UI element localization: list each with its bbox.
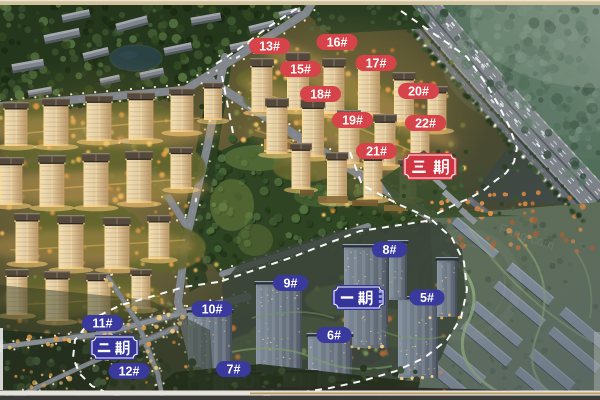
svg-text:5#: 5# [420,291,434,305]
svg-text:7#: 7# [227,362,241,376]
svg-text:6#: 6# [327,328,341,342]
svg-text:16#: 16# [327,35,348,49]
svg-text:19#: 19# [342,113,363,127]
svg-text:21#: 21# [366,144,387,158]
svg-text:11#: 11# [92,316,112,330]
svg-text:18#: 18# [310,87,331,101]
svg-text:8#: 8# [383,243,397,257]
svg-text:9#: 9# [284,276,298,290]
svg-text:12#: 12# [119,364,140,378]
svg-text:22#: 22# [415,116,436,130]
svg-text:13#: 13# [259,39,280,53]
svg-text:17#: 17# [366,56,387,70]
svg-text:20#: 20# [408,84,429,98]
svg-text:15#: 15# [290,62,311,76]
svg-text:10#: 10# [202,302,223,316]
